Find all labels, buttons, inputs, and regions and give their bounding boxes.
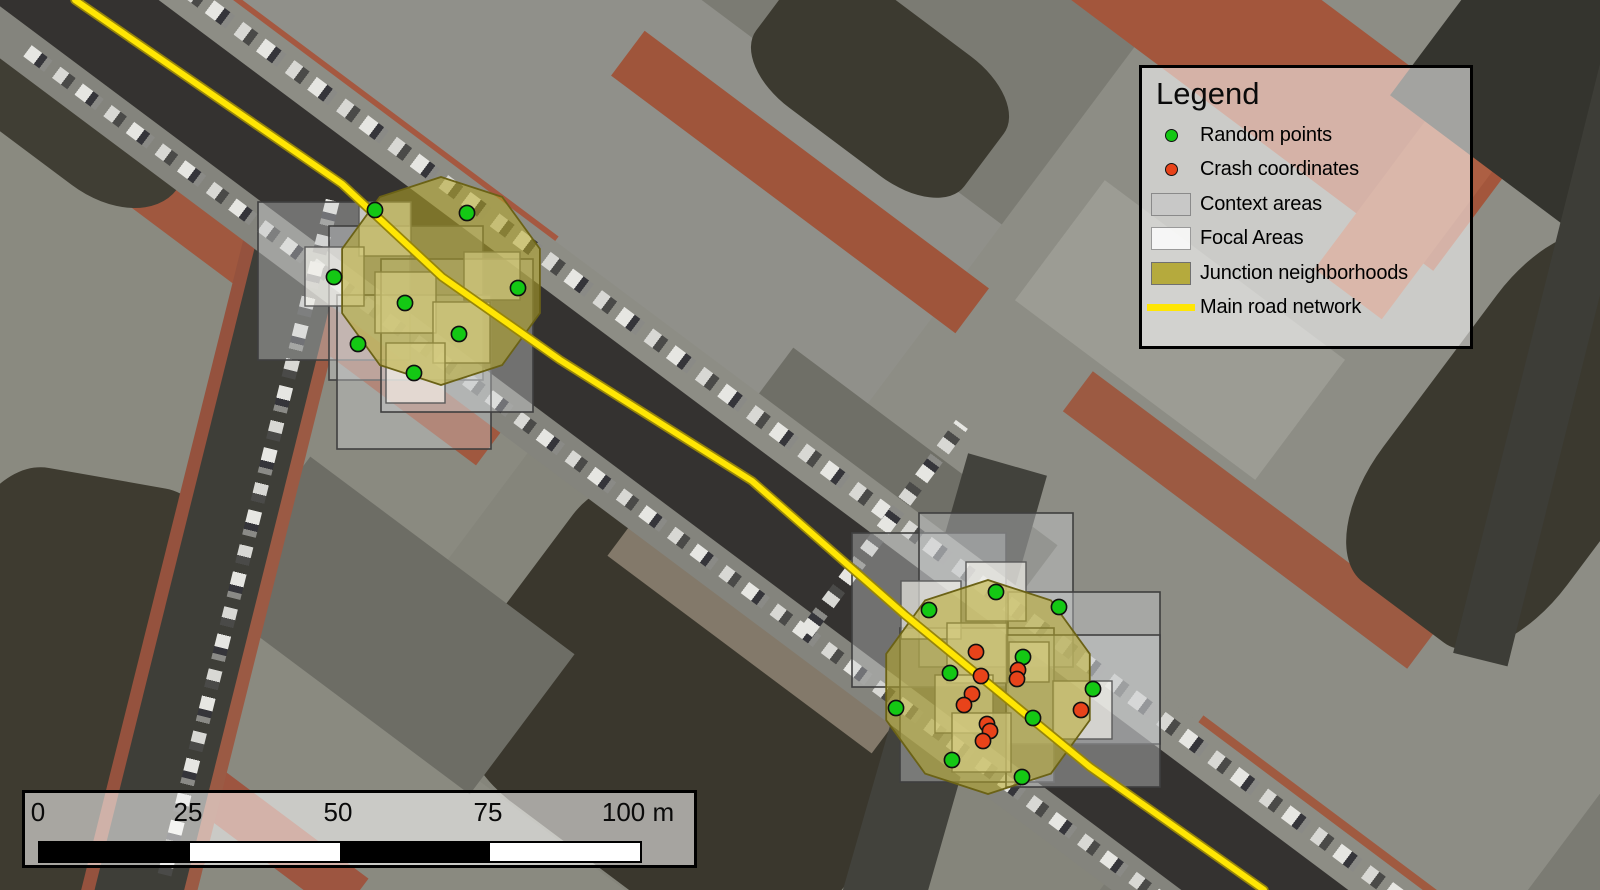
legend-box: Legend Random pointsCrash coordinatesCon… xyxy=(1139,65,1473,349)
legend-item: Random points xyxy=(1142,118,1470,153)
scale-bar-segment xyxy=(490,843,640,861)
scale-bar-segment xyxy=(340,843,490,861)
random-point xyxy=(1051,599,1066,614)
scale-tick-label: 50 xyxy=(324,797,353,828)
legend-item: Main road network xyxy=(1142,291,1470,326)
legend-item-label: Context areas xyxy=(1200,193,1322,216)
legend-item: Junction neighborhoods xyxy=(1142,256,1470,291)
scale-bar: 0255075100 m xyxy=(22,790,697,868)
legend-area-swatch-icon xyxy=(1142,193,1200,216)
crash-point xyxy=(956,697,971,712)
legend-item: Context areas xyxy=(1142,187,1470,222)
legend-item-label: Random points xyxy=(1200,124,1332,147)
random-point xyxy=(326,269,341,284)
random-point xyxy=(988,584,1003,599)
crash-point xyxy=(975,733,990,748)
legend-title: Legend xyxy=(1156,76,1470,112)
swatch-shape xyxy=(1165,129,1178,142)
legend-item: Crash coordinates xyxy=(1142,153,1470,188)
random-point xyxy=(406,365,421,380)
random-point xyxy=(1085,681,1100,696)
scale-bar-segments xyxy=(38,841,642,863)
crash-point xyxy=(973,668,988,683)
scale-bar-segment xyxy=(40,843,190,861)
legend-item-label: Junction neighborhoods xyxy=(1200,262,1408,285)
crash-point xyxy=(968,644,983,659)
swatch-shape xyxy=(1151,193,1191,216)
map-figure: Legend Random pointsCrash coordinatesCon… xyxy=(0,0,1600,890)
scale-bar-segment xyxy=(190,843,340,861)
legend-rows: Random pointsCrash coordinatesContext ar… xyxy=(1142,118,1470,325)
random-point xyxy=(942,665,957,680)
random-point xyxy=(350,336,365,351)
legend-road-swatch-icon xyxy=(1142,304,1200,311)
random-point xyxy=(1025,710,1040,725)
crash-point xyxy=(1073,702,1088,717)
legend-item-label: Crash coordinates xyxy=(1200,158,1359,181)
scale-tick-label: 75 xyxy=(474,797,503,828)
random-point xyxy=(944,752,959,767)
scale-tick-label: 25 xyxy=(174,797,203,828)
legend-area-swatch-icon xyxy=(1142,227,1200,250)
random-point xyxy=(921,602,936,617)
swatch-shape xyxy=(1151,262,1191,285)
scale-tick-label: 0 xyxy=(31,797,45,828)
crash-point xyxy=(1009,671,1024,686)
scale-tick-label: 100 m xyxy=(602,797,674,828)
legend-item-label: Focal Areas xyxy=(1200,227,1303,250)
legend-point-swatch-icon xyxy=(1142,129,1200,142)
random-point xyxy=(367,202,382,217)
swatch-shape xyxy=(1147,304,1195,311)
swatch-shape xyxy=(1151,227,1191,250)
swatch-shape xyxy=(1165,163,1178,176)
random-point xyxy=(510,280,525,295)
random-point xyxy=(888,700,903,715)
random-point xyxy=(451,326,466,341)
random-point xyxy=(459,205,474,220)
random-point xyxy=(397,295,412,310)
legend-item-label: Main road network xyxy=(1200,296,1361,319)
legend-area-swatch-icon xyxy=(1142,262,1200,285)
random-point xyxy=(1014,769,1029,784)
legend-item: Focal Areas xyxy=(1142,222,1470,257)
legend-point-swatch-icon xyxy=(1142,163,1200,176)
